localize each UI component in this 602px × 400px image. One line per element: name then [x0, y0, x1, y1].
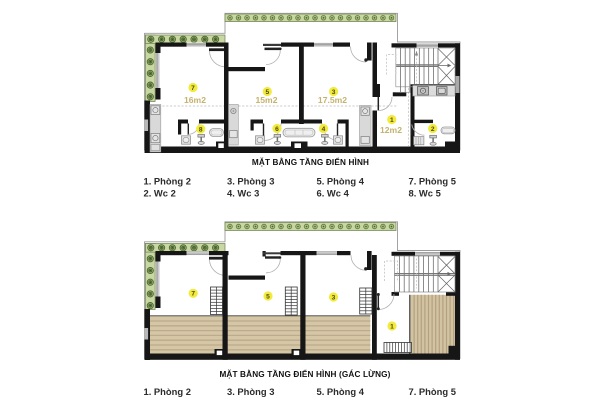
- svg-text:MẶT BẰNG TẦNG ĐIỂN HÌNH: MẶT BẰNG TẦNG ĐIỂN HÌNH: [252, 156, 369, 167]
- svg-text:6: 6: [275, 126, 279, 133]
- svg-text:7: 7: [191, 85, 195, 92]
- svg-text:8. Wc 5: 8. Wc 5: [409, 188, 441, 199]
- svg-text:4. Wc 3: 4. Wc 3: [227, 188, 259, 199]
- svg-text:2: 2: [431, 126, 435, 133]
- svg-text:12m2: 12m2: [380, 125, 402, 135]
- svg-text:4: 4: [322, 126, 326, 133]
- svg-text:2. Wc 2: 2. Wc 2: [144, 188, 176, 199]
- svg-text:3: 3: [332, 294, 336, 301]
- svg-text:1: 1: [390, 323, 394, 330]
- svg-text:7. Phòng 5: 7. Phòng 5: [409, 175, 456, 186]
- svg-text:3. Phòng 3: 3. Phòng 3: [227, 175, 274, 186]
- svg-text:1. Phòng 2: 1. Phòng 2: [144, 386, 191, 397]
- svg-text:1. Phòng 2: 1. Phòng 2: [144, 175, 191, 186]
- svg-text:15m2: 15m2: [256, 95, 278, 105]
- svg-text:3. Phòng 3: 3. Phòng 3: [227, 386, 274, 397]
- svg-text:7: 7: [191, 291, 195, 298]
- svg-text:5: 5: [266, 293, 270, 300]
- svg-text:7. Phòng 5: 7. Phòng 5: [409, 386, 456, 397]
- svg-text:5. Phòng 4: 5. Phòng 4: [317, 386, 365, 397]
- svg-text:17.5m2: 17.5m2: [318, 95, 347, 105]
- svg-text:MẶT BẰNG TẦNG ĐIỂN HÌNH (GÁC L: MẶT BẰNG TẦNG ĐIỂN HÌNH (GÁC LỪNG): [219, 368, 390, 379]
- svg-text:5. Phòng 4: 5. Phòng 4: [317, 175, 365, 186]
- svg-text:8: 8: [199, 126, 203, 133]
- svg-text:16m2: 16m2: [184, 95, 206, 105]
- svg-text:1: 1: [390, 117, 394, 124]
- svg-text:6. Wc 4: 6. Wc 4: [317, 188, 350, 199]
